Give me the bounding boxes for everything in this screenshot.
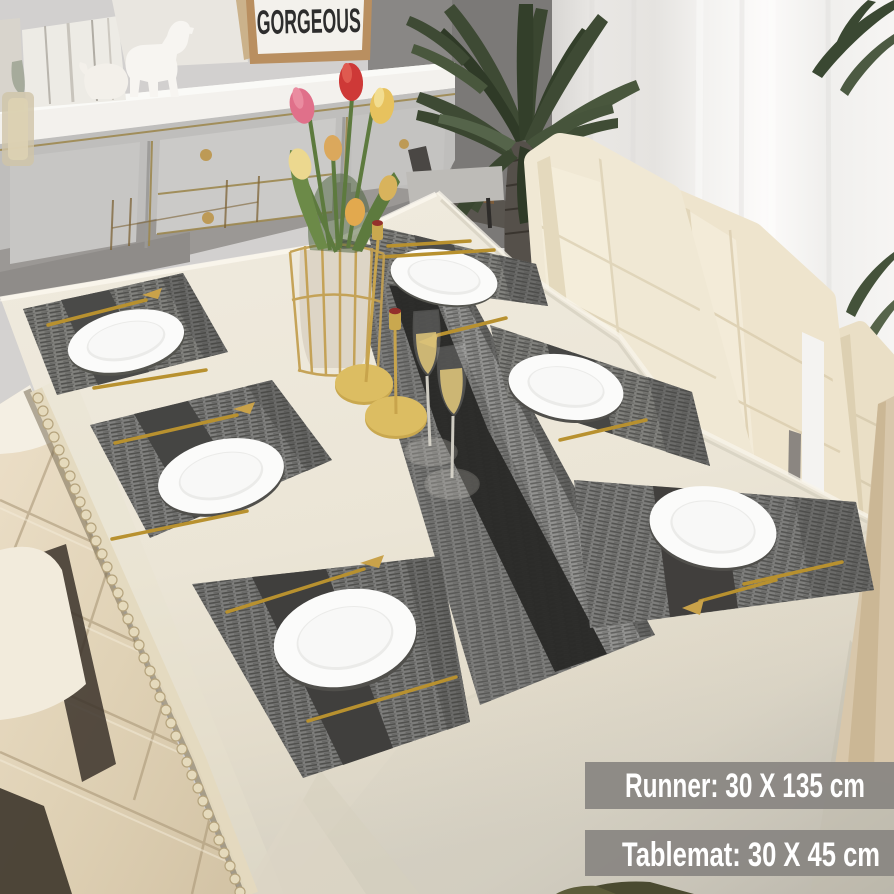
svg-text:Tablemat: 30 X 45 cm: Tablemat: 30 X 45 cm: [622, 836, 880, 874]
svg-text:GORGEOUS: GORGEOUS: [256, 2, 361, 42]
svg-text:Runner: 30 X 135 cm: Runner: 30 X 135 cm: [625, 767, 865, 805]
